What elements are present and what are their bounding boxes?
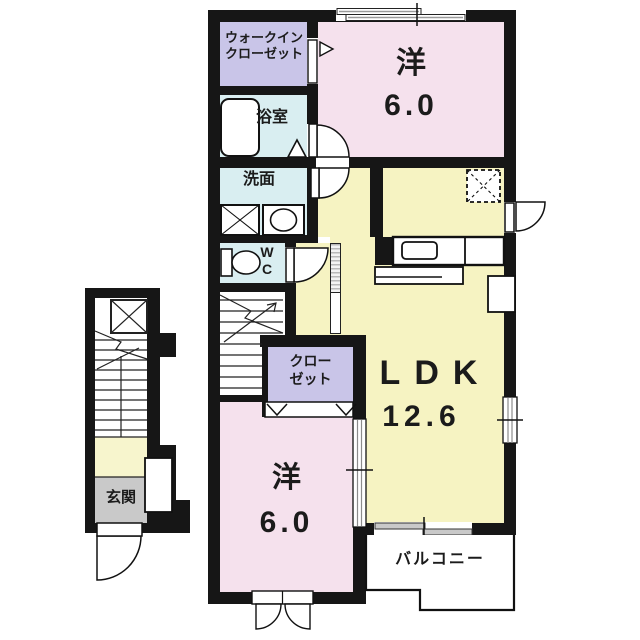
bedroom-bottom-label: 洋 [220, 460, 353, 496]
walk-in-closet-label: ウォークインクローゼット [222, 30, 306, 63]
wall-right [504, 10, 516, 535]
stair-landing [95, 437, 147, 477]
wc-label: WC [256, 244, 278, 278]
wall-washroom-bottom [208, 235, 318, 243]
wall-ldk-bottom [353, 523, 516, 535]
hallway [296, 243, 330, 337]
washroom-label: 洗面 [230, 170, 288, 190]
wall-wic-bath-right [307, 22, 318, 157]
wall-kitchen-stub [370, 157, 383, 237]
bedroom-top-label: 洋 [318, 45, 504, 83]
wall-bedroom-top-bottom [208, 157, 516, 168]
bathroom-label: 浴室 [246, 108, 298, 128]
room-bedroom-bottom [220, 402, 353, 592]
wall-washroom-right [307, 168, 318, 243]
wall-left [208, 10, 220, 604]
entrance-label: 玄関 [95, 489, 147, 508]
wall-top [208, 10, 516, 22]
wall-bedroom-bottom-bottom [208, 592, 366, 604]
closet-label: クローゼット [268, 353, 353, 388]
wall-wic-bottom [208, 86, 307, 95]
wall-wc-bottom [208, 283, 296, 292]
wall-closet-top [260, 335, 366, 347]
sliding-partition-closed [330, 243, 341, 294]
balcony-outline [366, 535, 514, 610]
stairwell-wall-notch-lower [160, 445, 176, 533]
ldk-size: 12.6 [339, 398, 504, 436]
stairwell-wall-step [176, 500, 190, 533]
ldk-label: LDK [353, 352, 518, 395]
bedroom-bottom-size: 6.0 [220, 504, 353, 542]
floor-plan: ウォークインクローゼット 浴室 洗面 WC 洋 6.0 LDK 12.6 クロー… [0, 0, 640, 640]
sliding-partition-open [330, 292, 341, 334]
balcony-label: バルコニー [366, 550, 514, 570]
bedroom-top-size: 6.0 [318, 87, 504, 125]
room-ldk-upper [318, 168, 504, 237]
wall-stairs-bottom [208, 395, 265, 402]
stairwell-wall-notch-upper [160, 333, 176, 357]
